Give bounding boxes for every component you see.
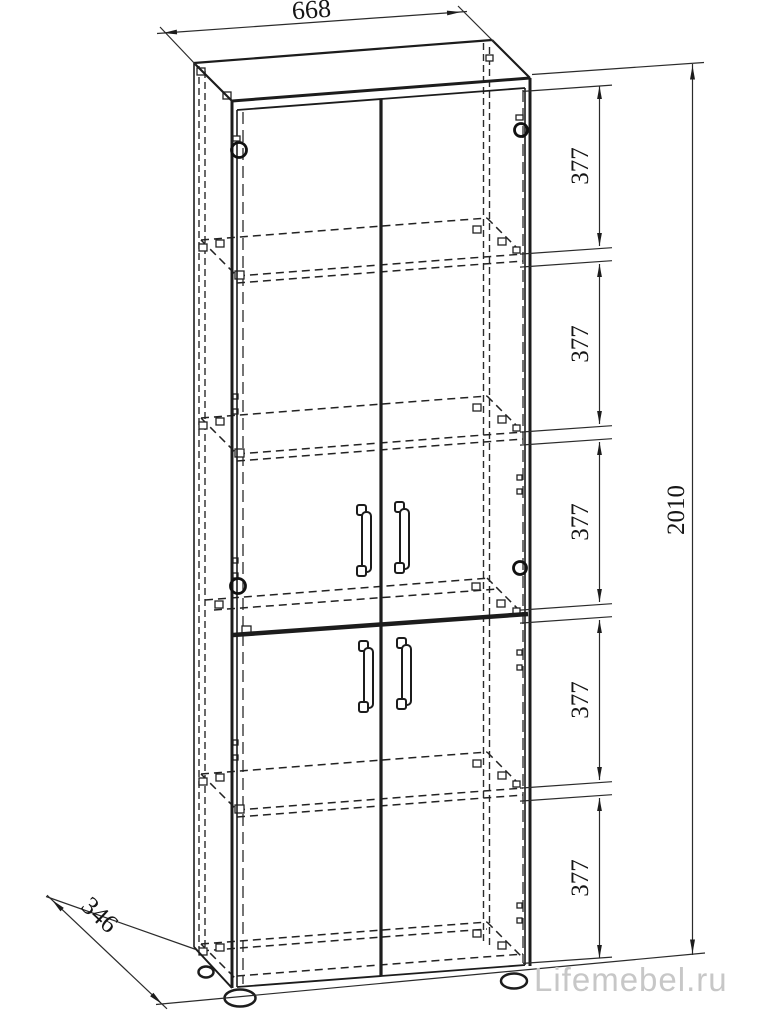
dim-label-section-2: 377 (567, 325, 594, 363)
watermark-text: Lifemebel.ru (534, 961, 728, 998)
dim-label-section-1: 377 (567, 147, 594, 185)
shelf-1-hidden (199, 218, 523, 283)
shelf-2-hidden (199, 396, 523, 461)
dim-label-section-5: 377 (567, 859, 594, 897)
dimension-depth: 346 (46, 891, 196, 1009)
bottom-panel-hidden (199, 922, 523, 980)
handle-icon (359, 641, 373, 712)
dimension-width: 668 (157, 0, 494, 65)
foot-icon (199, 967, 214, 978)
hinge-icon (232, 143, 247, 158)
dim-label-section-3: 377 (567, 503, 594, 541)
drawing-canvas: 668 346 377 377 377 377 (0, 0, 759, 1012)
dim-label-height: 2010 (663, 485, 690, 535)
handle-icon (397, 638, 411, 709)
dimension-height: 2010 (156, 63, 705, 1005)
dim-label-depth: 346 (76, 891, 124, 939)
dim-label-section-4: 377 (567, 681, 594, 719)
dimension-sections: 377 377 377 377 377 (520, 85, 612, 963)
handle-icon (395, 502, 409, 573)
door-handles (357, 502, 411, 712)
shelf-3-hidden (199, 752, 523, 817)
shelf-pin-hole-marks (197, 55, 522, 923)
handle-icon (357, 505, 371, 576)
foot-icon (501, 974, 527, 989)
cabinet-technical-drawing: 668 346 377 377 377 377 (0, 0, 759, 1012)
dim-label-width: 668 (291, 0, 332, 25)
